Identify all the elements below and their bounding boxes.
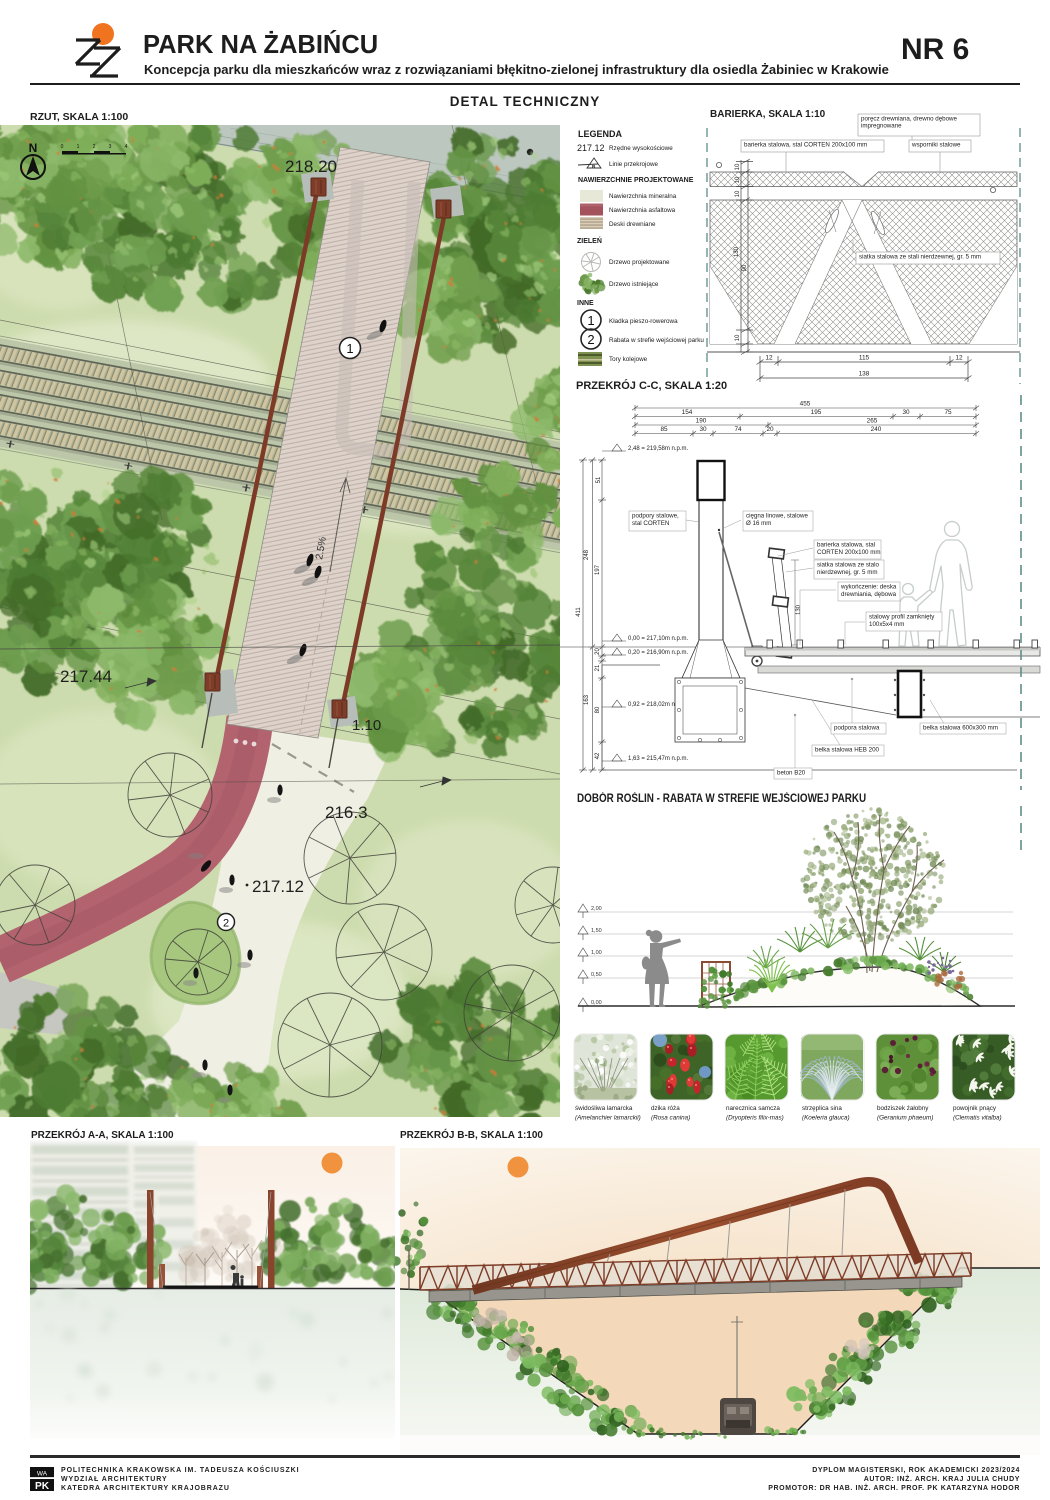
svg-text:218.20: 218.20 [285, 157, 337, 176]
svg-text:190: 190 [696, 418, 707, 425]
svg-text:1.10: 1.10 [352, 717, 381, 734]
svg-text:Ø 16 mm: Ø 16 mm [746, 520, 771, 527]
svg-text:217.12: 217.12 [577, 143, 605, 153]
svg-text:130: 130 [734, 246, 740, 257]
svg-text:0,20 = 216,90m n.p.m.: 0,20 = 216,90m n.p.m. [628, 650, 689, 656]
svg-text:12: 12 [765, 355, 773, 362]
svg-text:N: N [29, 141, 38, 155]
svg-text:217.44: 217.44 [60, 667, 112, 686]
svg-text:1: 1 [346, 341, 353, 356]
svg-text:10: 10 [735, 190, 741, 197]
svg-text:beton B20: beton B20 [777, 770, 806, 777]
svg-text:stal CORTEN: stal CORTEN [632, 520, 669, 527]
svg-text:narecznica samcza: narecznica samcza [726, 1105, 780, 1112]
svg-text:belka stalowa HEB 200: belka stalowa HEB 200 [815, 747, 880, 754]
svg-text:WA: WA [37, 1470, 48, 1477]
svg-text:(Geranium phaeum): (Geranium phaeum) [877, 1115, 933, 1122]
svg-text:2,48 = 219,58m n.p.m.: 2,48 = 219,58m n.p.m. [628, 446, 689, 452]
svg-text:siatka stalowa ze stalo: siatka stalowa ze stalo [817, 562, 879, 569]
svg-text:100x5x4 mm: 100x5x4 mm [869, 621, 904, 628]
svg-text:90: 90 [742, 264, 748, 271]
svg-text:podpora stalowa: podpora stalowa [834, 725, 880, 732]
svg-text:10: 10 [735, 334, 741, 341]
svg-text:CORTEN 200x100 mm: CORTEN 200x100 mm [817, 549, 881, 556]
svg-text:PK: PK [35, 1481, 50, 1492]
svg-text:Kładka pieszo-rowerowa: Kładka pieszo-rowerowa [609, 318, 678, 325]
svg-text:2: 2 [93, 144, 96, 150]
svg-text:(Dryopteris filix-mas): (Dryopteris filix-mas) [726, 1115, 784, 1122]
svg-text:wykończenie: deska: wykończenie: deska [840, 584, 897, 591]
svg-text:INNE: INNE [577, 300, 594, 307]
svg-text:4: 4 [125, 144, 128, 150]
svg-text:strzęplica sina: strzęplica sina [802, 1105, 842, 1112]
svg-text:Nawierzchnia mineralna: Nawierzchnia mineralna [609, 193, 677, 200]
svg-text:195: 195 [811, 409, 822, 416]
svg-text:197: 197 [595, 564, 601, 575]
svg-text:85: 85 [660, 426, 668, 433]
svg-text:LEGENDA: LEGENDA [578, 129, 623, 139]
svg-text:cięgna linowe, stalowe: cięgna linowe, stalowe [746, 513, 808, 520]
svg-text:115: 115 [859, 355, 870, 362]
svg-text:Drzewo istniejące: Drzewo istniejące [609, 281, 659, 288]
svg-text:nierdzewnej, gr. 5 mm: nierdzewnej, gr. 5 mm [817, 569, 878, 576]
svg-text:10: 10 [735, 176, 741, 183]
svg-text:świdośliwa lamarcka: świdośliwa lamarcka [575, 1105, 633, 1112]
svg-text:stalowy profil zamknięty: stalowy profil zamknięty [869, 614, 935, 621]
svg-text:Drzewo projektowane: Drzewo projektowane [609, 259, 670, 266]
svg-text:Rzędne wysokościowe: Rzędne wysokościowe [609, 145, 673, 152]
svg-text:138: 138 [859, 371, 870, 378]
svg-text:265: 265 [867, 418, 878, 425]
svg-text:(Koeleria glauca): (Koeleria glauca) [802, 1115, 850, 1122]
svg-text:130: 130 [796, 604, 802, 615]
svg-text:163: 163 [584, 694, 590, 705]
svg-text:80: 80 [595, 706, 601, 713]
svg-text:drewniania, dębowa: drewniania, dębowa [841, 591, 897, 598]
svg-text:Tory kolejowe: Tory kolejowe [609, 356, 648, 363]
svg-text:30: 30 [699, 426, 707, 433]
svg-text:impregnowane: impregnowane [861, 123, 902, 130]
svg-text:bodziszek żałobny: bodziszek żałobny [877, 1105, 929, 1112]
svg-text:Deski drewniane: Deski drewniane [609, 221, 656, 228]
svg-text:powojnik pnący: powojnik pnący [953, 1105, 997, 1112]
svg-text:74: 74 [734, 426, 742, 433]
svg-text:21: 21 [595, 664, 601, 671]
svg-text:12: 12 [955, 355, 963, 362]
svg-text:siatka stalowa ze stali nierdz: siatka stalowa ze stali nierdzewnej, gr.… [859, 253, 981, 260]
svg-text:0,50: 0,50 [591, 972, 602, 978]
svg-text:51: 51 [596, 476, 602, 483]
svg-text:barierka stalowa, stal CORTEN: barierka stalowa, stal CORTEN 200x100 mm [744, 141, 867, 148]
svg-text:poręcz drewniana, drewno dębow: poręcz drewniana, drewno dębowe [861, 115, 958, 122]
svg-text:0,00 = 217,10m n.p.m.: 0,00 = 217,10m n.p.m. [628, 636, 689, 642]
svg-text:0: 0 [61, 144, 64, 150]
svg-text:154: 154 [682, 409, 693, 416]
svg-text:dzika róża: dzika róża [651, 1105, 680, 1112]
svg-text:1,00: 1,00 [591, 950, 602, 956]
svg-text:2: 2 [587, 332, 594, 347]
svg-text:Linie przekrojowe: Linie przekrojowe [609, 161, 658, 168]
svg-text:248: 248 [584, 549, 590, 560]
svg-text:NAWIERZCHNIE PROJEKTOWANE: NAWIERZCHNIE PROJEKTOWANE [578, 177, 694, 184]
svg-text:wsporniki stalowe: wsporniki stalowe [911, 141, 961, 148]
svg-text:belka stalowa 600x300 mm: belka stalowa 600x300 mm [923, 725, 998, 732]
svg-text:1: 1 [77, 144, 80, 150]
svg-text:podpory stalowe,: podpory stalowe, [632, 513, 679, 520]
svg-text:2: 2 [223, 918, 229, 930]
svg-text:1: 1 [587, 313, 594, 328]
svg-text:411: 411 [576, 607, 582, 617]
svg-text:20: 20 [766, 426, 774, 433]
svg-text:1,50: 1,50 [591, 928, 602, 934]
svg-text:0,00: 0,00 [591, 1000, 602, 1006]
svg-text:(Clematis vitalba): (Clematis vitalba) [953, 1115, 1002, 1122]
svg-text:20: 20 [595, 648, 601, 655]
svg-text:1,63 = 215,47m n.p.m.: 1,63 = 215,47m n.p.m. [628, 756, 689, 762]
svg-text:217.12: 217.12 [252, 877, 304, 896]
svg-text:barierka stalowa, stal: barierka stalowa, stal [817, 542, 875, 549]
svg-text:10: 10 [735, 163, 741, 170]
svg-text:75: 75 [944, 409, 952, 416]
svg-text:42: 42 [595, 752, 601, 759]
svg-text:Nawierzchnia asfaltowa: Nawierzchnia asfaltowa [609, 207, 676, 214]
svg-text:216.3: 216.3 [325, 803, 368, 822]
svg-text:(Rosa canina): (Rosa canina) [651, 1115, 690, 1122]
svg-text:240: 240 [871, 426, 882, 433]
svg-text:(Amelanchier lamarckii): (Amelanchier lamarckii) [575, 1115, 641, 1122]
svg-text:30: 30 [902, 409, 910, 416]
svg-text:ZIELEŃ: ZIELEŃ [577, 236, 602, 245]
svg-text:3: 3 [109, 144, 112, 150]
svg-text:2,00: 2,00 [591, 906, 602, 912]
svg-text:455: 455 [800, 401, 811, 408]
